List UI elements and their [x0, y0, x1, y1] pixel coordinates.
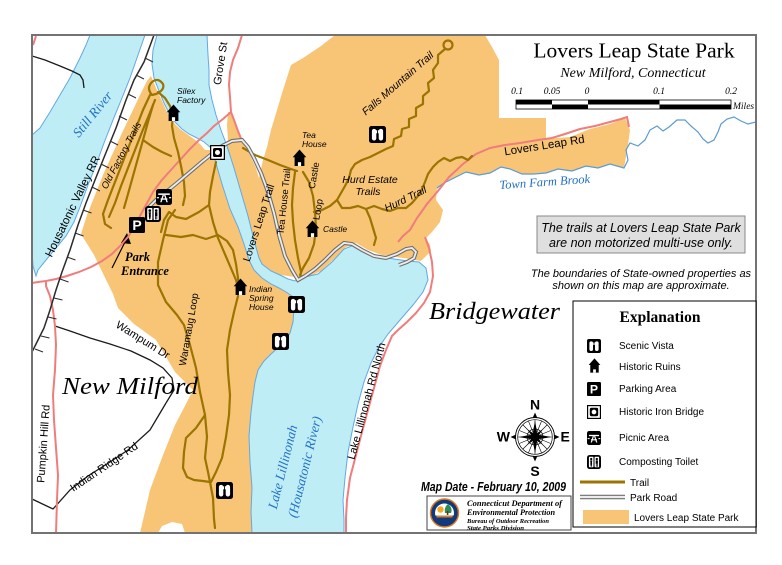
svg-text:New Milford: New Milford	[61, 373, 199, 400]
svg-text:N: N	[530, 397, 540, 413]
svg-text:Park: Park	[125, 250, 151, 264]
svg-text:0: 0	[585, 87, 590, 97]
svg-text:E: E	[561, 429, 570, 445]
svg-text:Parking Area: Parking Area	[619, 384, 677, 395]
svg-text:Composting Toilet: Composting Toilet	[619, 457, 699, 468]
svg-text:Miles: Miles	[732, 102, 754, 112]
svg-text:0.1: 0.1	[653, 87, 665, 97]
svg-text:Bureau of Outdoor Recreation: Bureau of Outdoor Recreation	[466, 518, 549, 525]
svg-text:Hurd Estate: Hurd Estate	[342, 174, 398, 186]
svg-text:Trail: Trail	[630, 478, 649, 489]
svg-text:Historic Ruins: Historic Ruins	[619, 362, 681, 373]
svg-text:Lovers Leap State Park: Lovers Leap State Park	[533, 39, 734, 63]
svg-text:Picnic Area: Picnic Area	[619, 433, 669, 444]
svg-text:Park Road: Park Road	[630, 493, 677, 504]
svg-text:Scenic Vista: Scenic Vista	[619, 341, 674, 352]
svg-text:shown on this map are approxim: shown on this map are approximate.	[552, 280, 729, 292]
svg-text:Map Date - February 10, 2009: Map Date - February 10, 2009	[421, 480, 566, 494]
svg-text:Environmental Protection: Environmental Protection	[466, 507, 555, 517]
svg-text:State Parks Division: State Parks Division	[467, 525, 524, 532]
svg-text:0.2: 0.2	[725, 87, 737, 97]
svg-text:0.1: 0.1	[511, 87, 523, 97]
svg-text:House: House	[249, 302, 274, 312]
svg-text:are non motorized multi-use on: are non motorized multi-use only.	[549, 236, 733, 250]
svg-text:The boundaries of State-owned: The boundaries of State-owned properties…	[531, 268, 752, 280]
svg-text:New Milford, Connecticut: New Milford, Connecticut	[559, 66, 706, 81]
svg-text:Lovers Leap State Park: Lovers Leap State Park	[634, 513, 740, 524]
svg-text:Historic Iron Bridge: Historic Iron Bridge	[619, 407, 704, 418]
svg-text:Trails: Trails	[356, 186, 382, 198]
svg-text:Bridgewater: Bridgewater	[429, 298, 560, 325]
svg-text:0.05: 0.05	[544, 87, 561, 97]
svg-text:Explanation: Explanation	[620, 309, 701, 326]
svg-text:The trails at Lovers Leap Stat: The trails at Lovers Leap State Park	[541, 221, 741, 235]
svg-text:Entrance: Entrance	[120, 264, 169, 278]
svg-text:S: S	[530, 463, 539, 479]
svg-text:Castle: Castle	[323, 224, 347, 234]
svg-text:Factory: Factory	[177, 95, 206, 105]
svg-text:House: House	[302, 139, 327, 149]
svg-text:W: W	[497, 429, 511, 445]
